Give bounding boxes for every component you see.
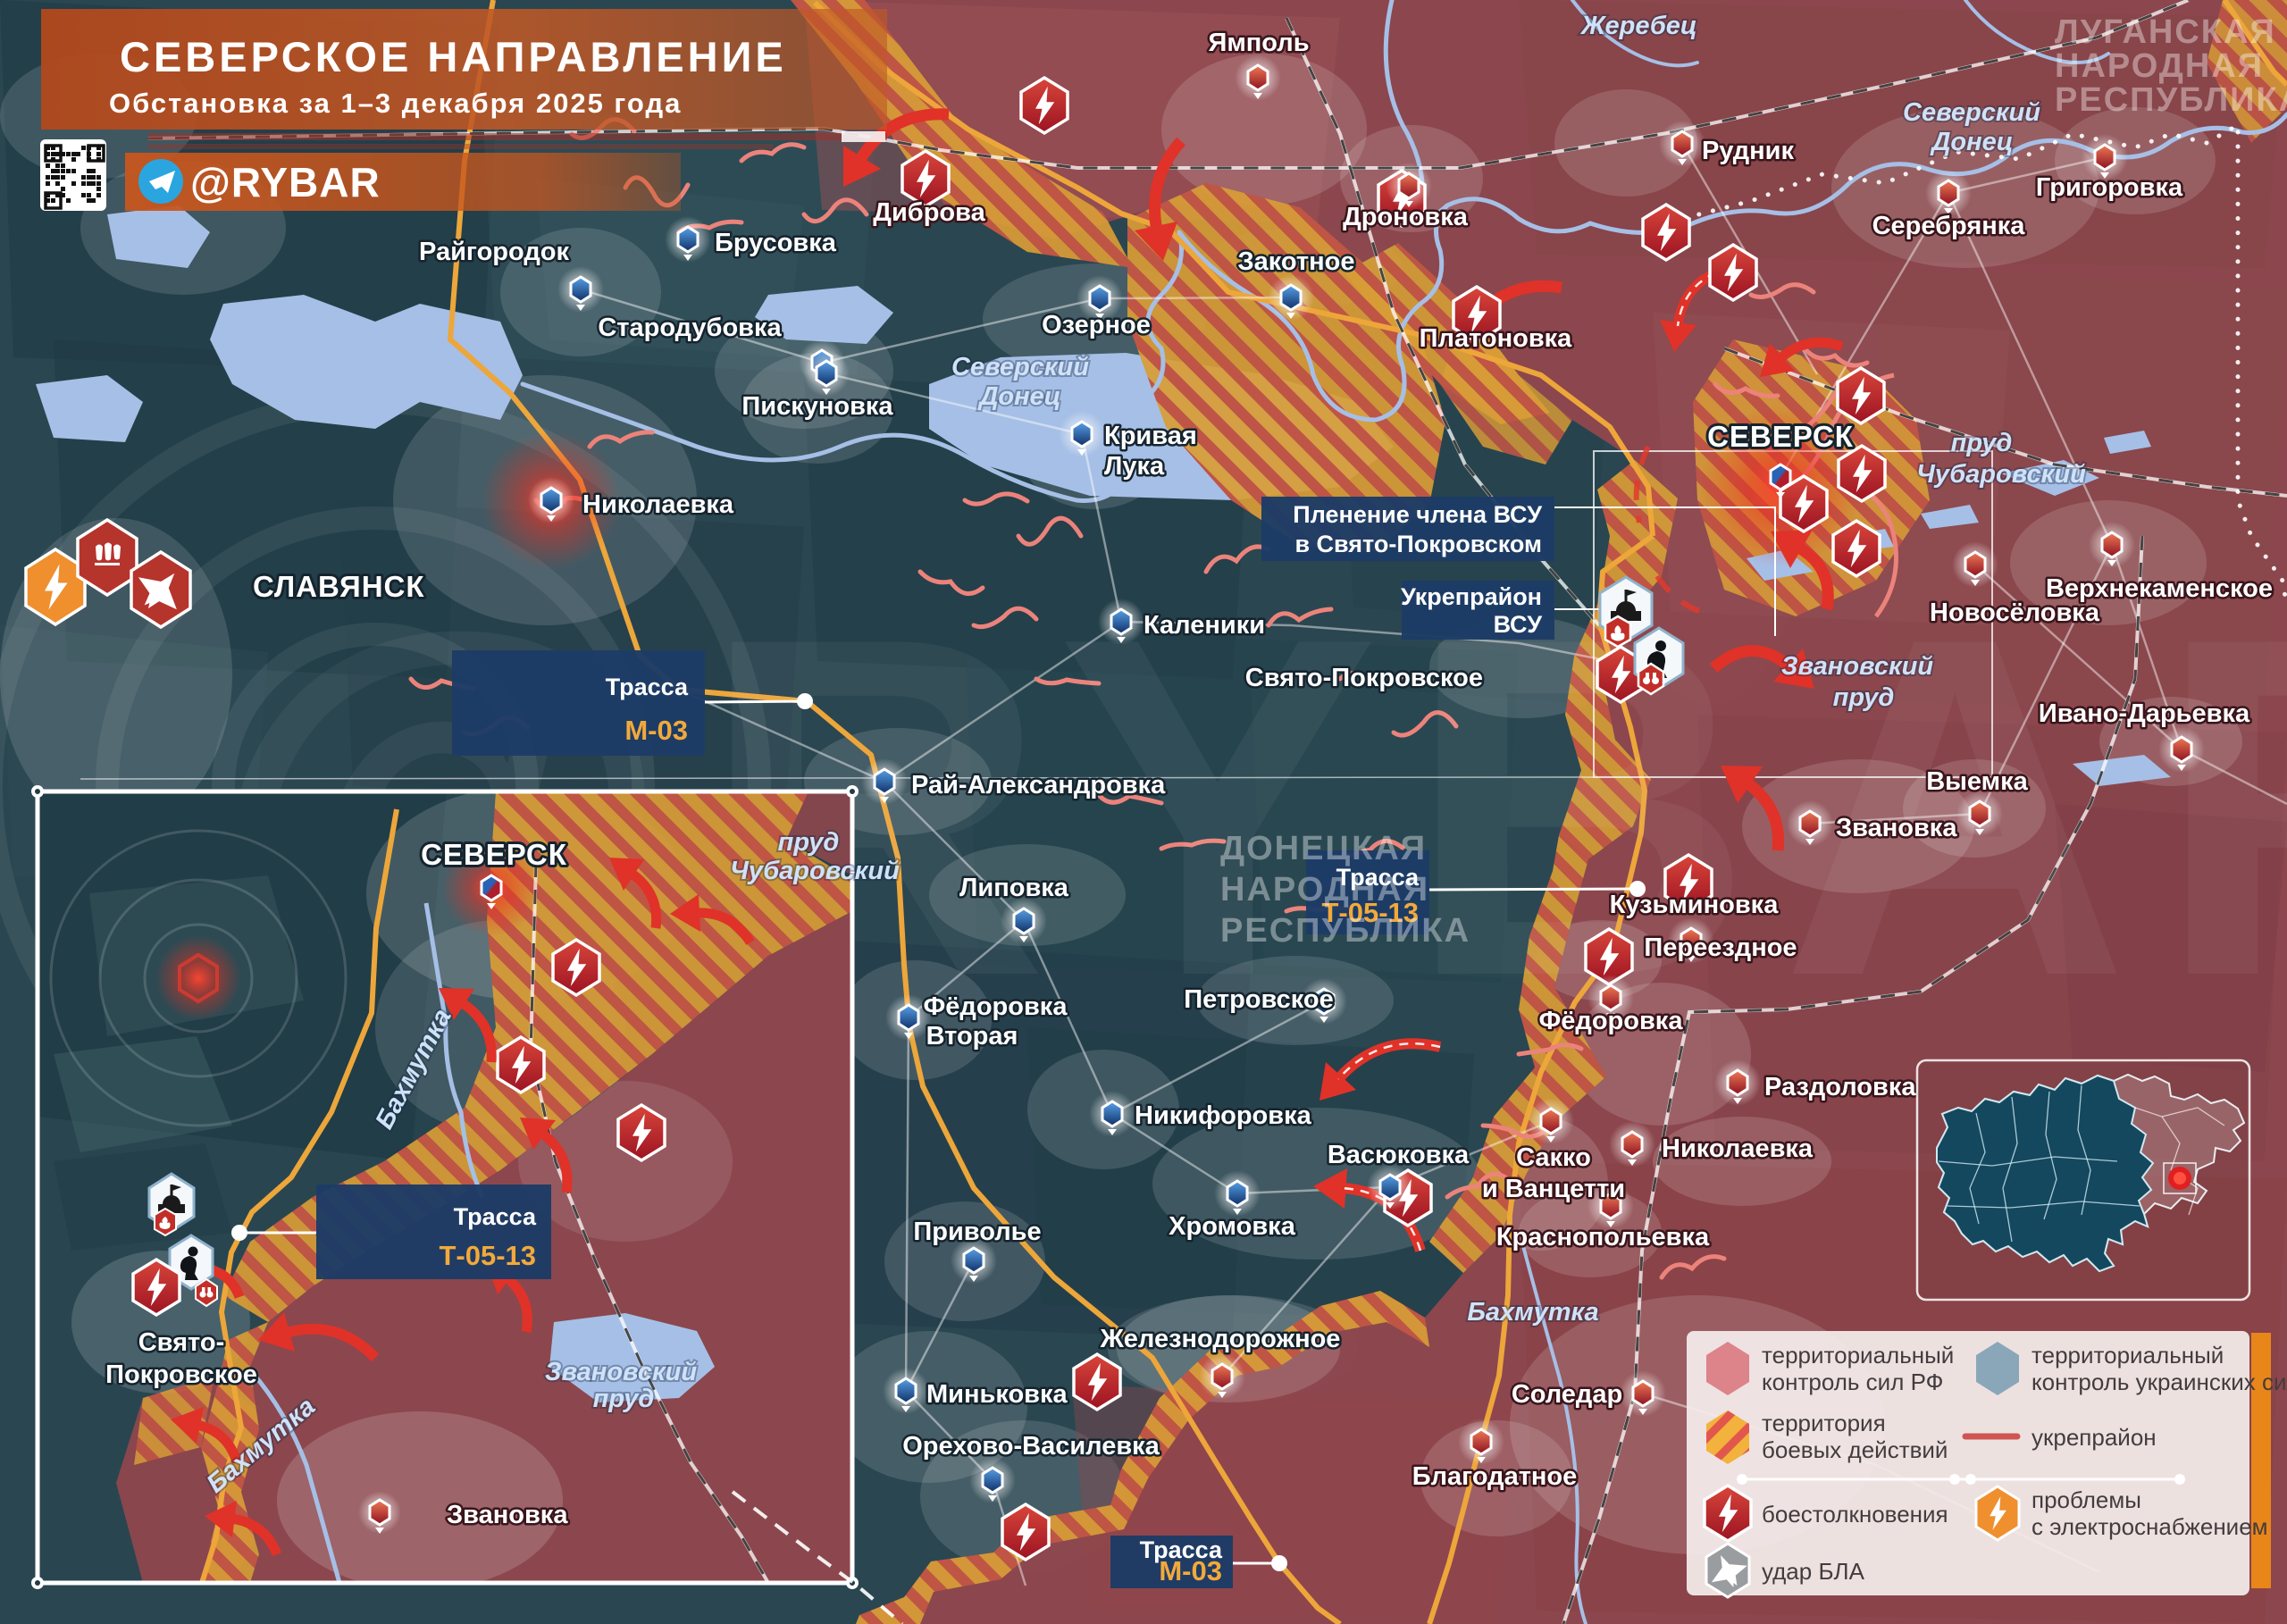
svg-text:Соледар: Соледар bbox=[1512, 1380, 1622, 1409]
svg-text:СЛАВЯНСК: СЛАВЯНСК bbox=[253, 570, 425, 603]
svg-text:Кривая: Кривая bbox=[1104, 422, 1197, 450]
svg-text:СЕВЕРСК: СЕВЕРСК bbox=[421, 838, 567, 871]
svg-text:Диброва: Диброва bbox=[873, 198, 985, 227]
svg-text:Звановский: Звановский bbox=[545, 1358, 697, 1386]
svg-text:Петровское: Петровское bbox=[1184, 985, 1333, 1014]
svg-text:Свято-: Свято- bbox=[138, 1328, 225, 1357]
svg-text:М-03: М-03 bbox=[624, 715, 688, 746]
svg-text:пруд: пруд bbox=[1951, 429, 2013, 457]
svg-text:Рай-Александровка: Рай-Александровка bbox=[911, 771, 1166, 799]
svg-text:Северский: Северский bbox=[951, 353, 1089, 381]
svg-text:Райгородок: Райгородок bbox=[419, 238, 569, 266]
svg-text:пруд: пруд bbox=[1833, 683, 1895, 712]
svg-text:Звановка: Звановка bbox=[1836, 814, 1957, 842]
svg-text:ЛУГАНСКАЯ: ЛУГАНСКАЯ bbox=[2055, 13, 2276, 51]
svg-text:Озерное: Озерное bbox=[1042, 311, 1151, 339]
svg-text:Пискуновка: Пискуновка bbox=[741, 392, 893, 421]
svg-text:Донец: Донец bbox=[976, 382, 1060, 411]
svg-text:Выемка: Выемка bbox=[1926, 767, 2028, 796]
svg-text:ДОНЕЦКАЯ: ДОНЕЦКАЯ bbox=[1220, 830, 1427, 867]
svg-text:Лука: Лука bbox=[1104, 452, 1165, 481]
svg-text:Орехово-Василевка: Орехово-Василевка bbox=[902, 1432, 1160, 1461]
svg-text:Северский: Северский bbox=[1903, 98, 2040, 127]
svg-text:Укрепрайон: Укрепрайон bbox=[1401, 583, 1542, 610]
svg-text:Каленики: Каленики bbox=[1143, 611, 1265, 640]
svg-text:Чубаровский: Чубаровский bbox=[1916, 460, 2086, 489]
svg-text:М-03: М-03 bbox=[1159, 1555, 1222, 1586]
svg-text:Приволье: Приволье bbox=[913, 1218, 1041, 1246]
svg-text:контроль украинских сил: контроль украинских сил bbox=[2031, 1369, 2287, 1395]
svg-text:Сакко: Сакко bbox=[1516, 1143, 1591, 1172]
svg-text:Трасса: Трасса bbox=[454, 1203, 537, 1230]
svg-text:проблемы: проблемы bbox=[2031, 1486, 2141, 1513]
svg-text:Рудник: Рудник bbox=[1702, 137, 1795, 165]
svg-text:Васюковка: Васюковка bbox=[1328, 1141, 1470, 1169]
svg-text:Трасса: Трасса bbox=[606, 674, 689, 700]
svg-text:Звановка: Звановка bbox=[447, 1501, 568, 1529]
svg-text:с электроснабжением: с электроснабжением bbox=[2031, 1513, 2268, 1540]
svg-text:Миньковка: Миньковка bbox=[926, 1380, 1068, 1409]
svg-text:укрепрайон: укрепрайон bbox=[2031, 1424, 2157, 1451]
svg-text:Липовка: Липовка bbox=[959, 874, 1069, 902]
svg-text:Донец: Донец bbox=[1929, 128, 2013, 156]
svg-text:Новосёловка: Новосёловка bbox=[1930, 599, 2100, 627]
svg-text:Закотное: Закотное bbox=[1238, 247, 1355, 276]
svg-text:Николаевка: Николаевка bbox=[1662, 1134, 1814, 1163]
svg-text:НАРОДНАЯ: НАРОДНАЯ bbox=[1220, 871, 1429, 908]
svg-text:Вторая: Вторая bbox=[926, 1022, 1018, 1051]
svg-text:РЕСПУБЛИКА: РЕСПУБЛИКА bbox=[1220, 912, 1470, 950]
svg-text:в Свято-Покровском: в Свято-Покровском bbox=[1294, 531, 1542, 557]
svg-text:Бахмутка: Бахмутка bbox=[1467, 1298, 1598, 1327]
svg-text:и Ванцетти: и Ванцетти bbox=[1482, 1175, 1625, 1203]
svg-text:Стародубовка: Стародубовка bbox=[598, 314, 782, 342]
svg-text:Кузьминовка: Кузьминовка bbox=[1610, 891, 1780, 919]
svg-text:Брусовка: Брусовка bbox=[715, 229, 837, 257]
svg-text:ВСУ: ВСУ bbox=[1494, 611, 1544, 638]
svg-text:Свято-Покровское: Свято-Покровское bbox=[1245, 664, 1483, 692]
svg-text:удар БЛА: удар БЛА bbox=[1762, 1558, 1865, 1585]
svg-text:территория: территория bbox=[1762, 1410, 1886, 1436]
svg-text:пруд: пруд bbox=[778, 828, 840, 857]
svg-text:Дроновка: Дроновка bbox=[1343, 203, 1469, 231]
svg-text:контроль сил РФ: контроль сил РФ bbox=[1762, 1369, 1943, 1395]
svg-text:Переездное: Переездное bbox=[1644, 933, 1797, 962]
svg-text:Краснопольевка: Краснопольевка bbox=[1496, 1223, 1710, 1251]
svg-text:РЕСПУБЛИКА: РЕСПУБЛИКА bbox=[2055, 81, 2287, 119]
svg-text:Фёдоровка: Фёдоровка bbox=[924, 992, 1068, 1021]
svg-text:Серебрянка: Серебрянка bbox=[1872, 212, 2026, 240]
svg-text:СЕВЕРСК: СЕВЕРСК bbox=[1707, 420, 1854, 453]
svg-text:Пленение члена ВСУ: Пленение члена ВСУ bbox=[1293, 501, 1543, 528]
svg-text:Звановский: Звановский bbox=[1781, 652, 1933, 681]
svg-text:территориальный: территориальный bbox=[2031, 1342, 2224, 1369]
svg-text:СЕВЕРСКОЕ НАПРАВЛЕНИЕ: СЕВЕРСКОЕ НАПРАВЛЕНИЕ bbox=[120, 33, 787, 80]
svg-text:Покровское: Покровское bbox=[105, 1360, 257, 1389]
svg-text:Жеребец: Жеребец bbox=[1579, 12, 1697, 40]
svg-text:Железнодорожное: Железнодорожное bbox=[1100, 1325, 1341, 1353]
svg-text:Ямполь: Ямполь bbox=[1208, 29, 1309, 57]
svg-text:НАРОДНАЯ: НАРОДНАЯ bbox=[2055, 47, 2264, 85]
svg-text:Раздоловка: Раздоловка bbox=[1764, 1073, 1916, 1101]
svg-text:Никифоровка: Никифоровка bbox=[1135, 1101, 1312, 1130]
svg-text:Обстановка за 1–3 декабря 2025: Обстановка за 1–3 декабря 2025 года bbox=[109, 88, 682, 119]
svg-text:Чубаровский: Чубаровский bbox=[730, 857, 900, 885]
svg-text:территориальный: территориальный bbox=[1762, 1342, 1954, 1369]
svg-text:Т-05-13: Т-05-13 bbox=[439, 1240, 536, 1271]
svg-text:Платоновка: Платоновка bbox=[1420, 324, 1573, 353]
svg-text:Хромовка: Хромовка bbox=[1169, 1212, 1296, 1241]
svg-text:Фёдоровка: Фёдоровка bbox=[1539, 1007, 1684, 1035]
svg-text:боевых действий: боевых действий bbox=[1762, 1436, 1948, 1463]
svg-text:пруд: пруд bbox=[593, 1385, 655, 1413]
svg-text:Николаевка: Николаевка bbox=[582, 490, 734, 519]
svg-text:Благодатное: Благодатное bbox=[1412, 1462, 1578, 1491]
svg-text:@RYBAR: @RYBAR bbox=[190, 159, 381, 205]
svg-text:Григоровка: Григоровка bbox=[2036, 173, 2183, 202]
svg-text:Ивано-Дарьевка: Ивано-Дарьевка bbox=[2039, 699, 2250, 728]
svg-text:боестолкновения: боестолкновения bbox=[1762, 1501, 1948, 1528]
